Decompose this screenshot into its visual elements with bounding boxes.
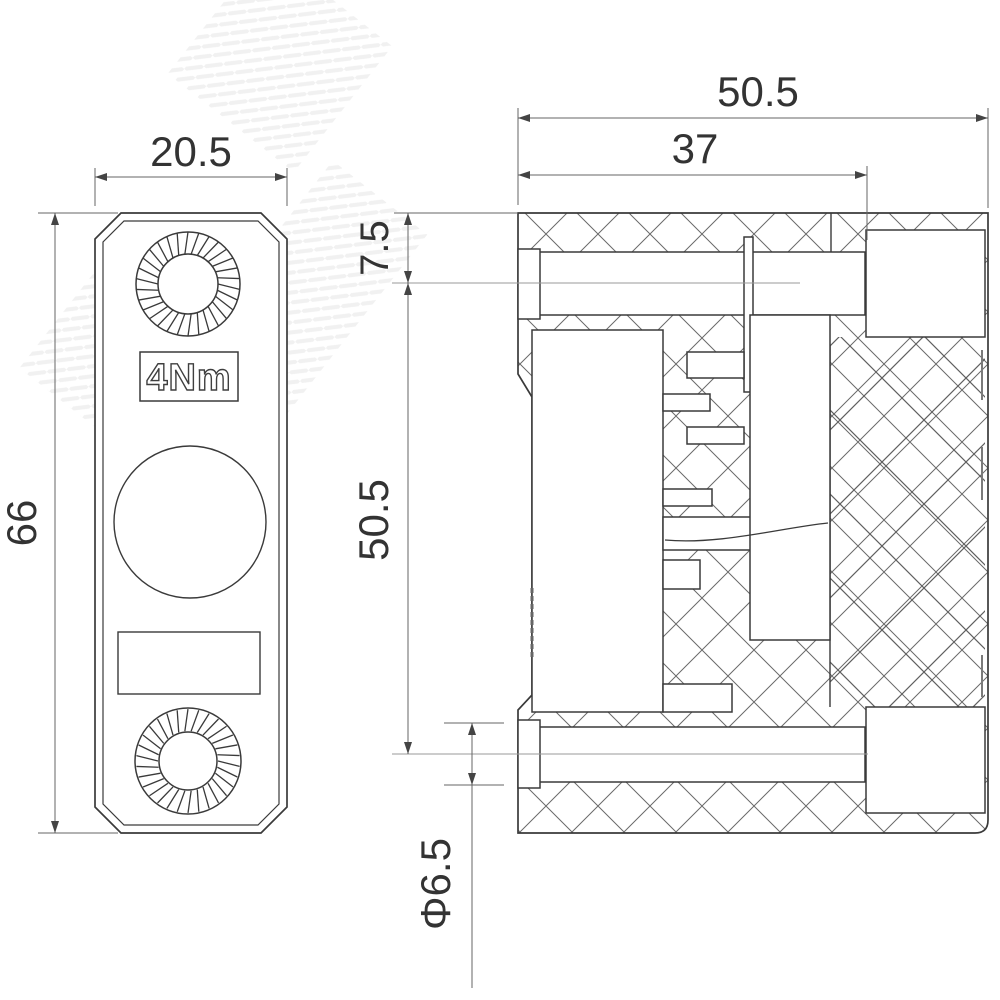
dim-hole-spacing: 50.5 (350, 283, 408, 754)
front-view: 4Nm 20.5 66 (0, 128, 287, 833)
dim-section-overall-width-text: 50.5 (717, 68, 799, 115)
center-hole-circle (114, 446, 266, 598)
dim-section-inner-width-text: 37 (672, 125, 719, 172)
dim-front-height-text: 66 (0, 500, 45, 547)
notch-a (663, 394, 710, 411)
technical-drawing: 4Nm 20.5 66 (0, 0, 1000, 1000)
wire-slot (663, 517, 755, 550)
dim-hole-offset: 7.5 (353, 213, 518, 283)
notch-d (663, 684, 732, 712)
dim-hole-diameter: Φ6.5 (412, 723, 504, 988)
torque-marking-text: 4Nm (146, 357, 231, 399)
clamp-cavity (750, 315, 830, 640)
top-right-pocket (866, 230, 985, 337)
coarse-hatch-region (830, 337, 985, 707)
bottom-right-pocket (866, 707, 985, 813)
left-cavity (532, 330, 663, 712)
bottom-screw-channel (527, 727, 865, 782)
technical-drawing-page: 4Nm 20.5 66 (0, 0, 1000, 1000)
section-view: 50.5 37 7.5 50.5 Φ6.5 (350, 68, 988, 988)
top-collar (518, 249, 540, 319)
top-screw-channel (527, 252, 865, 315)
dim-front-width-text: 20.5 (150, 128, 232, 175)
column-pocket-b (687, 427, 744, 444)
notch-b (663, 489, 712, 506)
label-window-rect (118, 632, 260, 694)
dim-hole-spacing-text: 50.5 (350, 479, 397, 561)
column-pocket-a (687, 352, 744, 378)
notch-c (663, 560, 700, 589)
dim-section-overall-width: 50.5 (518, 68, 988, 208)
dim-hole-offset-text: 7.5 (353, 220, 397, 276)
dim-hole-diameter-text: Φ6.5 (412, 838, 459, 930)
